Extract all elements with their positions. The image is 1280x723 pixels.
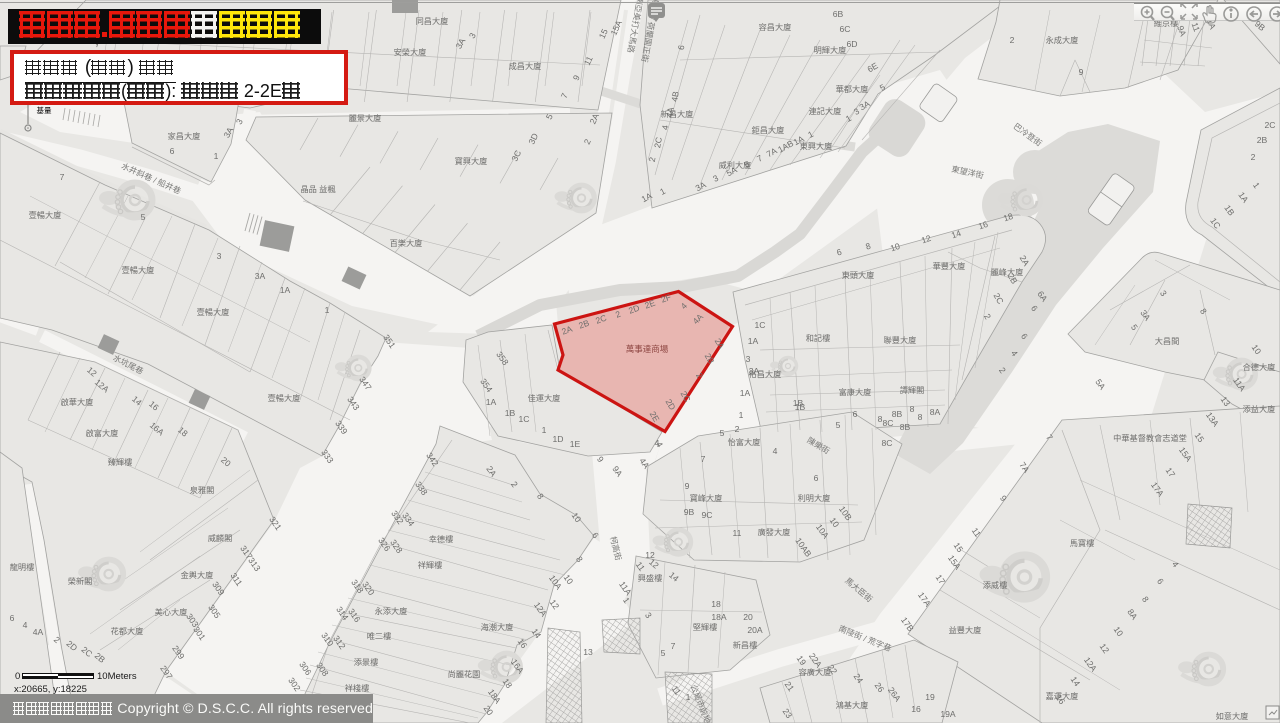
svg-text:金輿大廈: 金輿大廈: [181, 570, 214, 580]
svg-text:麗景大廈: 麗景大廈: [349, 113, 382, 123]
svg-text:壹暢大廈: 壹暢大廈: [29, 210, 62, 220]
svg-text:8: 8: [918, 412, 923, 422]
svg-text:鴻基大廈: 鴻基大廈: [836, 700, 869, 710]
svg-text:添威樓: 添威樓: [983, 580, 1008, 590]
svg-text:中華基督教會志道堂: 中華基督教會志道堂: [1113, 433, 1187, 443]
svg-text:馬寶樓: 馬寶樓: [1070, 538, 1095, 548]
svg-text:6D: 6D: [847, 39, 858, 49]
svg-text:2: 2: [1010, 35, 1015, 45]
svg-text:6: 6: [814, 473, 819, 483]
svg-text:花都大廈: 花都大廈: [111, 626, 144, 636]
svg-text:6B: 6B: [833, 9, 844, 19]
svg-text:6: 6: [10, 613, 15, 623]
svg-text:8: 8: [878, 414, 883, 424]
svg-text:連記大廈: 連記大廈: [809, 106, 842, 116]
svg-text:19: 19: [925, 692, 935, 702]
svg-text:4A: 4A: [33, 627, 44, 637]
svg-text:16: 16: [911, 704, 921, 714]
svg-text:壹暢大廈: 壹暢大廈: [197, 307, 230, 317]
svg-text:1A: 1A: [280, 285, 291, 295]
svg-text:富康大廈: 富康大廈: [839, 387, 872, 397]
svg-text:9C: 9C: [702, 510, 713, 520]
svg-text:2C: 2C: [652, 136, 664, 149]
svg-text:19A: 19A: [940, 709, 956, 719]
svg-text:龍明樓: 龍明樓: [10, 562, 35, 572]
svg-text:4A: 4A: [664, 106, 676, 118]
svg-text:9B: 9B: [684, 507, 695, 517]
svg-text:2: 2: [1251, 152, 1256, 162]
svg-text:基量: 基量: [37, 105, 52, 115]
svg-text:成昌大廈: 成昌大廈: [509, 61, 542, 71]
svg-text:5: 5: [836, 420, 841, 430]
svg-text:同昌大廈: 同昌大廈: [416, 16, 449, 26]
svg-text:大昌間: 大昌間: [1155, 336, 1180, 346]
svg-text:臻輝樓: 臻輝樓: [108, 457, 133, 467]
svg-text:寶峰大廈: 寶峰大廈: [690, 493, 723, 503]
svg-text:1: 1: [542, 425, 547, 435]
svg-text:海潮大廈: 海潮大廈: [481, 622, 514, 632]
svg-text:18: 18: [711, 599, 721, 609]
svg-text:萬事達商場: 萬事達商場: [626, 344, 669, 354]
svg-text:5: 5: [661, 648, 666, 658]
svg-text:容昌大廈: 容昌大廈: [759, 22, 792, 32]
svg-text:7: 7: [671, 641, 676, 651]
svg-text:和記樓: 和記樓: [806, 333, 831, 343]
svg-text:壹暢大廈: 壹暢大廈: [268, 393, 301, 403]
svg-text:新昌樓: 新昌樓: [733, 640, 758, 650]
svg-text:1A: 1A: [486, 397, 497, 407]
svg-text:東頭大廈: 東頭大廈: [842, 270, 875, 280]
svg-text:5: 5: [720, 428, 725, 438]
svg-text:4: 4: [655, 438, 660, 448]
svg-text:壹暢大廈: 壹暢大廈: [122, 265, 155, 275]
svg-text:6: 6: [853, 409, 858, 419]
svg-text:尚麗花園: 尚麗花園: [448, 669, 481, 679]
svg-text:3A: 3A: [749, 366, 760, 376]
svg-text:1B: 1B: [795, 402, 806, 412]
svg-text:8B: 8B: [892, 409, 903, 419]
svg-text:3A: 3A: [255, 271, 266, 281]
svg-text:榮新閣: 榮新閣: [68, 576, 93, 586]
svg-text:泉雅閣: 泉雅閣: [190, 485, 215, 495]
svg-text:啟富大廈: 啟富大廈: [86, 428, 119, 438]
svg-text:1: 1: [686, 692, 691, 702]
svg-text:8B: 8B: [900, 422, 911, 432]
svg-text:18A: 18A: [711, 612, 727, 622]
svg-text:2B: 2B: [1257, 135, 1268, 145]
svg-text:祥棧樓: 祥棧樓: [345, 683, 370, 693]
svg-text:9: 9: [1079, 67, 1084, 77]
svg-text:怡富大廈: 怡富大廈: [728, 437, 761, 447]
svg-text:8A: 8A: [930, 407, 941, 417]
svg-text:3: 3: [217, 251, 222, 261]
svg-text:唯二樓: 唯二樓: [367, 631, 392, 641]
svg-text:1D: 1D: [553, 434, 564, 444]
svg-text:益豐大廈: 益豐大廈: [949, 625, 982, 635]
svg-text:鉅昌大廈: 鉅昌大廈: [752, 125, 785, 135]
svg-text:啟華大廈: 啟華大廈: [61, 397, 94, 407]
svg-text:8C: 8C: [883, 418, 894, 428]
svg-text:1A: 1A: [748, 336, 759, 346]
svg-text:添景樓: 添景樓: [354, 657, 379, 667]
svg-text:1: 1: [214, 151, 219, 161]
svg-text:永成大廈: 永成大廈: [1046, 35, 1079, 45]
svg-text:5: 5: [141, 212, 146, 222]
svg-text:1A: 1A: [740, 388, 751, 398]
svg-text:1E: 1E: [570, 439, 581, 449]
svg-text:1: 1: [739, 410, 744, 420]
svg-text:6C: 6C: [840, 24, 851, 34]
svg-text:6: 6: [170, 146, 175, 156]
svg-text:1B: 1B: [505, 408, 516, 418]
svg-text:幸德樓: 幸德樓: [429, 534, 454, 544]
svg-text:13: 13: [583, 647, 593, 657]
svg-text:8: 8: [910, 404, 915, 414]
svg-text:7: 7: [701, 454, 706, 464]
svg-text:4: 4: [773, 446, 778, 456]
svg-text:4: 4: [23, 620, 28, 630]
svg-text:添益大廈: 添益大廈: [1243, 404, 1276, 414]
svg-text:堅輝樓: 堅輝樓: [693, 622, 718, 632]
svg-text:興盛樓: 興盛樓: [638, 573, 663, 583]
svg-text:威麟閣: 威麟閣: [208, 533, 233, 543]
svg-text:8C: 8C: [882, 438, 893, 448]
svg-text:華都大廈: 華都大廈: [836, 84, 869, 94]
svg-text:3: 3: [746, 354, 751, 364]
svg-text:1C: 1C: [755, 320, 766, 330]
svg-text:祥輝樓: 祥輝樓: [418, 560, 443, 570]
svg-text:4B: 4B: [669, 90, 681, 102]
svg-text:合德大廈: 合德大廈: [1243, 362, 1276, 372]
svg-text:譚輝閣: 譚輝閣: [900, 385, 925, 395]
svg-text:家昌大廈: 家昌大廈: [168, 131, 201, 141]
svg-text:2C: 2C: [1265, 120, 1276, 130]
svg-text:永添大廈: 永添大廈: [375, 606, 408, 616]
svg-text:美心大廈: 美心大廈: [155, 607, 188, 617]
svg-text:晶品 益楓: 晶品 益楓: [300, 184, 336, 194]
svg-text:1C: 1C: [519, 414, 530, 424]
svg-text:華豐大廈: 華豐大廈: [933, 261, 966, 271]
svg-text:百樂大廈: 百樂大廈: [390, 238, 423, 248]
svg-text:1: 1: [325, 305, 330, 315]
svg-text:12: 12: [645, 550, 655, 560]
svg-text:寶興大廈: 寶興大廈: [455, 156, 488, 166]
svg-text:9: 9: [685, 481, 690, 491]
svg-text:聯豐大廈: 聯豐大廈: [884, 335, 917, 345]
svg-text:明輝大廈: 明輝大廈: [814, 45, 847, 55]
svg-text:廣發大廈: 廣發大廈: [758, 527, 791, 537]
svg-text:20A: 20A: [747, 625, 763, 635]
svg-text:11: 11: [733, 528, 742, 538]
svg-text:20: 20: [743, 612, 753, 622]
svg-text:如意大廈: 如意大廈: [1216, 711, 1249, 721]
svg-text:利明大廈: 利明大廈: [798, 493, 831, 503]
svg-text:佳運大廈: 佳運大廈: [528, 393, 561, 403]
svg-text:7: 7: [60, 172, 65, 182]
svg-text:安榮大廈: 安榮大廈: [394, 47, 427, 57]
svg-text:2: 2: [735, 424, 740, 434]
